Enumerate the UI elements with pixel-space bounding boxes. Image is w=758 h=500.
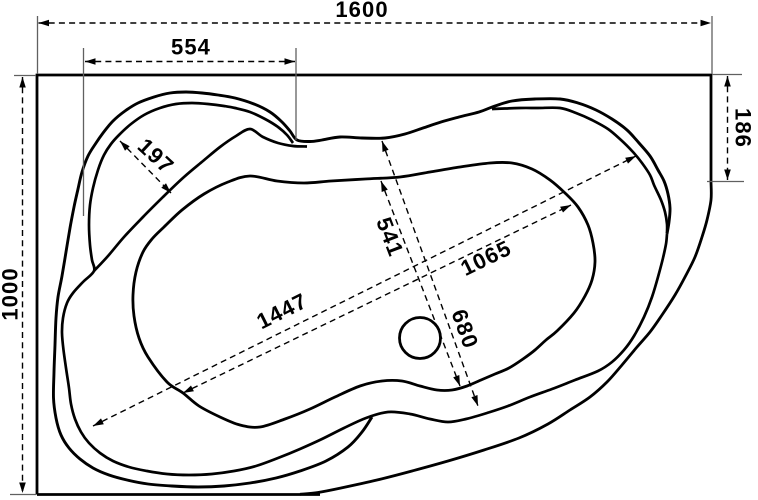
svg-text:1600: 1600 xyxy=(335,0,388,22)
svg-text:554: 554 xyxy=(171,35,211,60)
svg-text:186: 186 xyxy=(731,108,756,148)
svg-text:1000: 1000 xyxy=(0,267,23,320)
